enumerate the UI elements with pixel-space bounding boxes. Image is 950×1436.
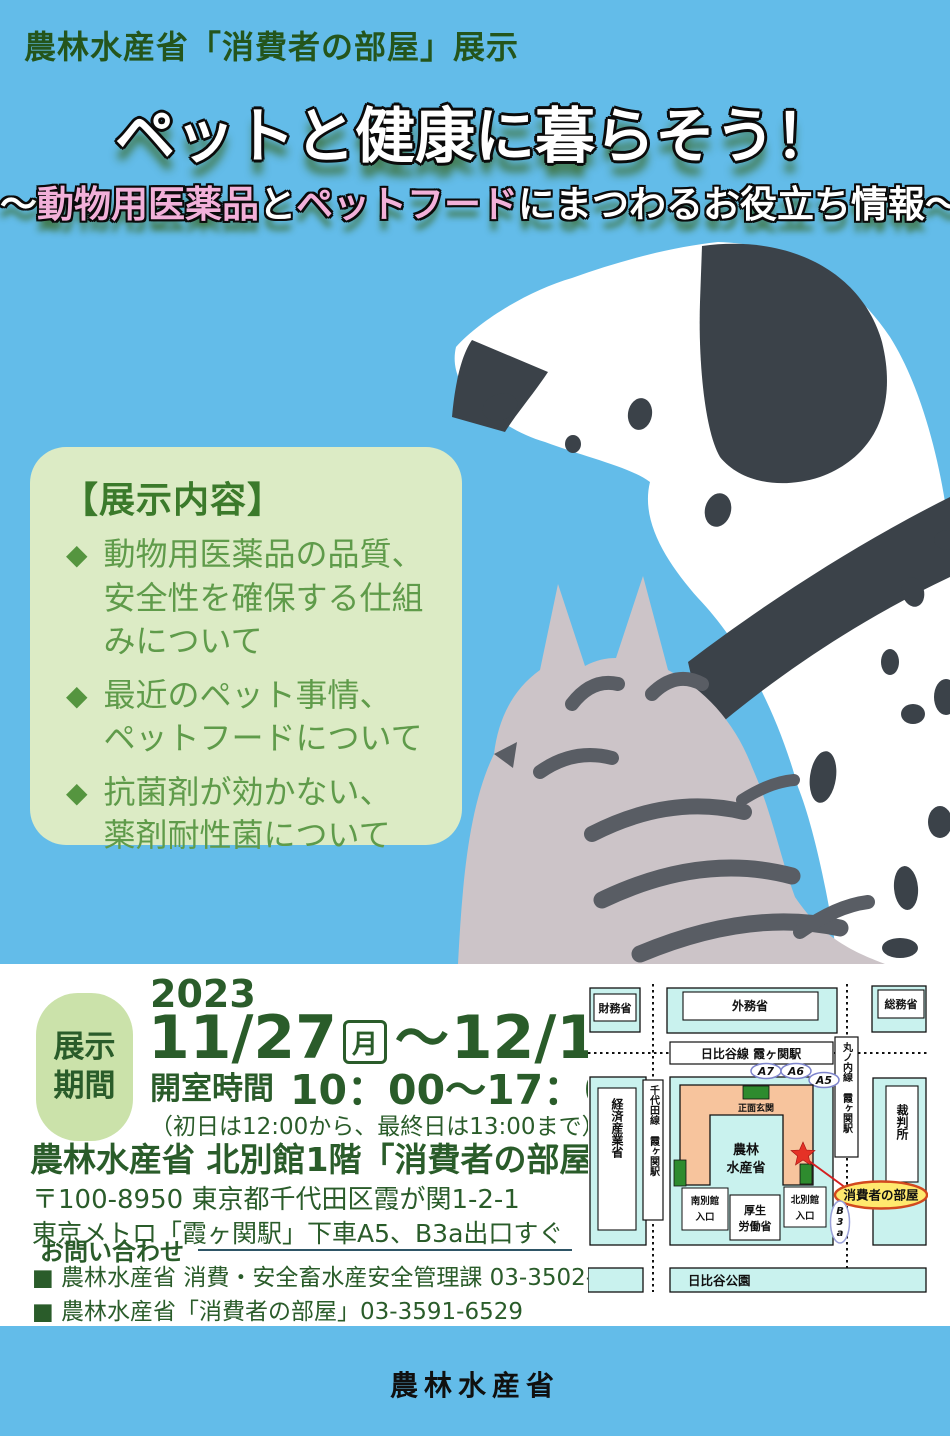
start-weekday-badge: 月 <box>343 1020 387 1064</box>
map-label-park: 日比谷公園 <box>688 1273 751 1288</box>
exhibit-heading: 【展示内容】 <box>62 471 444 523</box>
maff-logo-text: 農林水産省 <box>0 1364 950 1404</box>
exhibit-item-text: 動物用医薬品の品質、 安全性を確保する仕組 みについて <box>104 533 424 664</box>
contact-item: ■ 農林水産省「消費者の部屋」03-3591-6529 <box>32 1292 523 1326</box>
info-section: 展示 期間 2023 11/27 月 ～ 12/1 金 開室時間 10：00～1… <box>0 964 950 1326</box>
map-label-mhlw-1: 厚生 <box>744 1203 766 1217</box>
page-title: ペットと健康に暮らそう！ <box>0 88 950 175</box>
subtitle-rest: にまつわるお役立ち情報～ <box>518 183 950 226</box>
subtitle: ～動物用医薬品とペットフードにまつわるお役立ち情報～ <box>0 174 950 228</box>
date-range: 11/27 月 ～ 12/1 金 <box>148 1008 654 1068</box>
hours-label: 開室時間 <box>150 1063 274 1111</box>
exhibit-item-text: 抗菌剤が効かない、 薬剤耐性菌について <box>104 771 392 858</box>
exhibit-contents-box: 【展示内容】 ◆ 動物用医薬品の品質、 安全性を確保する仕組 みについて ◆ 最… <box>30 447 462 845</box>
exhibit-item: ◆ 最近のペット事情、 ペットフードについて <box>62 674 444 761</box>
contact-divider <box>198 1249 572 1251</box>
exhibit-item: ◆ 動物用医薬品の品質、 安全性を確保する仕組 みについて <box>62 533 444 664</box>
range-tilde: ～ <box>395 1012 449 1066</box>
exhibit-period-badge: 展示 期間 <box>36 993 133 1141</box>
exhibit-item-text: 最近のペット事情、 ペットフードについて <box>104 674 423 761</box>
footer-band: 農林水産省 <box>0 1326 950 1436</box>
map-label-somusho: 総務省 <box>885 997 918 1011</box>
diamond-bullet-icon: ◆ <box>66 779 88 858</box>
subtitle-and: と <box>259 183 296 226</box>
top-section: 農林水産省「消費者の部屋」展示 ペットと健康に暮らそう！ ～動物用医薬品とペット… <box>0 0 950 964</box>
north-annex-entrance-marker <box>800 1164 812 1184</box>
location-map: 財務省 外務省 総務省 経済産業省 裁判所 日比谷線 霞ヶ関駅 丸ノ内線 霞ヶ関… <box>588 982 928 1294</box>
contact-item: ■ 農林水産省 消費・安全畜水産安全管理課 03-3502-8097 <box>32 1258 653 1292</box>
map-label-maff-1: 農林 <box>733 1142 759 1158</box>
end-date: 12/1 <box>451 1008 598 1068</box>
agency-line: 農林水産省「消費者の部屋」展示 <box>24 22 519 68</box>
exit-b3a: B3a <box>835 1206 846 1239</box>
south-annex-entrance-marker <box>674 1160 686 1186</box>
diamond-bullet-icon: ◆ <box>66 682 88 761</box>
opening-hours: 開室時間 10：00～17：00 <box>150 1063 641 1111</box>
map-label-saibansho: 裁判所 <box>895 1103 909 1141</box>
map-label-maff-2: 水産省 <box>726 1160 765 1176</box>
map-label-keisansho: 経済産業省 <box>610 1097 624 1159</box>
map-label-mhlw-2: 労働省 <box>739 1219 772 1233</box>
poster-page: 農林水産省「消費者の部屋」展示 ペットと健康に暮らそう！ ～動物用医薬品とペット… <box>0 0 950 1436</box>
exhibit-item: ◆ 抗菌剤が効かない、 薬剤耐性菌について <box>62 771 444 858</box>
subtitle-pet-food: ペットフード <box>296 183 518 226</box>
exit-a5: A5 <box>815 1074 833 1087</box>
venue-name: 農林水産省 北別館1階「消費者の部屋」 <box>30 1133 625 1181</box>
front-entrance-marker <box>743 1086 769 1099</box>
map-label-front-entrance: 正面玄関 <box>738 1102 774 1114</box>
subtitle-veterinary-medicine: 動物用医薬品 <box>37 183 259 226</box>
map-label-north-annex-1: 北別館 <box>791 1194 820 1206</box>
diamond-bullet-icon: ◆ <box>66 541 88 664</box>
venue-address: 〒100-8950 東京都千代田区霞が関1-2-1 <box>32 1179 520 1216</box>
map-label-south-annex-2: 入口 <box>694 1212 714 1223</box>
subtitle-tilde-left: ～ <box>0 183 37 226</box>
exit-a6: A6 <box>787 1065 805 1078</box>
map-label-north-annex-2: 入口 <box>794 1211 814 1222</box>
map-label-consumer-room: 消費者の部屋 <box>843 1188 919 1203</box>
start-date: 11/27 <box>148 1008 337 1068</box>
map-label-gaimusho: 外務省 <box>732 998 768 1013</box>
map-label-south-annex-1: 南別館 <box>691 1195 720 1207</box>
map-label-hibiya-line: 日比谷線 霞ヶ関駅 <box>701 1046 802 1061</box>
exit-a7: A7 <box>757 1065 775 1078</box>
map-label-zaimusho: 財務省 <box>598 1001 632 1015</box>
